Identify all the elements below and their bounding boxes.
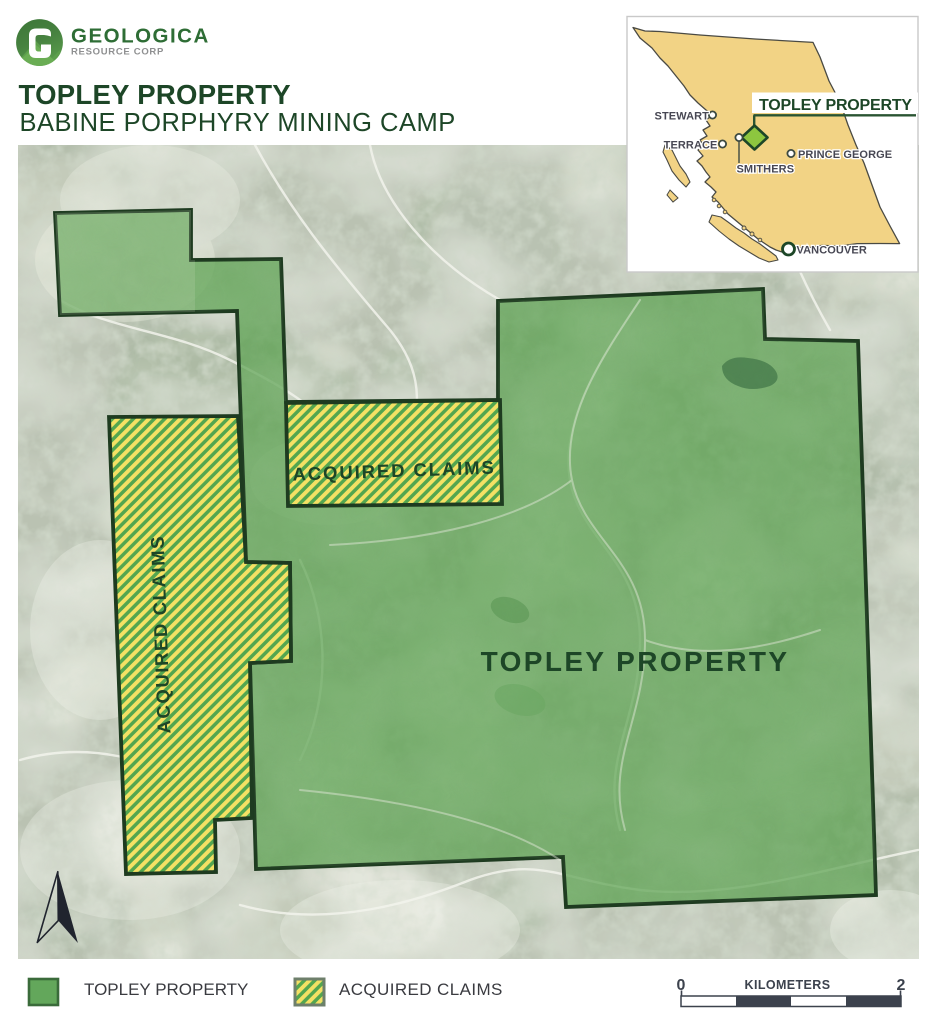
svg-text:BABINE PORPHYRY MINING CAMP: BABINE PORPHYRY MINING CAMP (20, 109, 456, 137)
svg-text:TOPLEY PROPERTY: TOPLEY PROPERTY (481, 646, 790, 677)
svg-text:ACQUIRED CLAIMS: ACQUIRED CLAIMS (339, 980, 503, 999)
svg-text:STEWART: STEWART (655, 111, 710, 123)
svg-text:TOPLEY PROPERTY: TOPLEY PROPERTY (759, 97, 912, 114)
svg-text:VANCOUVER: VANCOUVER (797, 245, 867, 257)
svg-text:PRINCE GEORGE: PRINCE GEORGE (798, 149, 892, 161)
svg-text:TOPLEY PROPERTY: TOPLEY PROPERTY (19, 79, 291, 110)
svg-text:KILOMETERS: KILOMETERS (745, 978, 831, 992)
svg-text:RESOURCE CORP: RESOURCE CORP (71, 47, 164, 58)
svg-text:GEOLOGICA: GEOLOGICA (71, 25, 210, 48)
svg-text:SMITHERS: SMITHERS (737, 164, 795, 176)
svg-text:TOPLEY PROPERTY: TOPLEY PROPERTY (84, 980, 248, 999)
svg-text:TERRACE: TERRACE (664, 140, 718, 152)
